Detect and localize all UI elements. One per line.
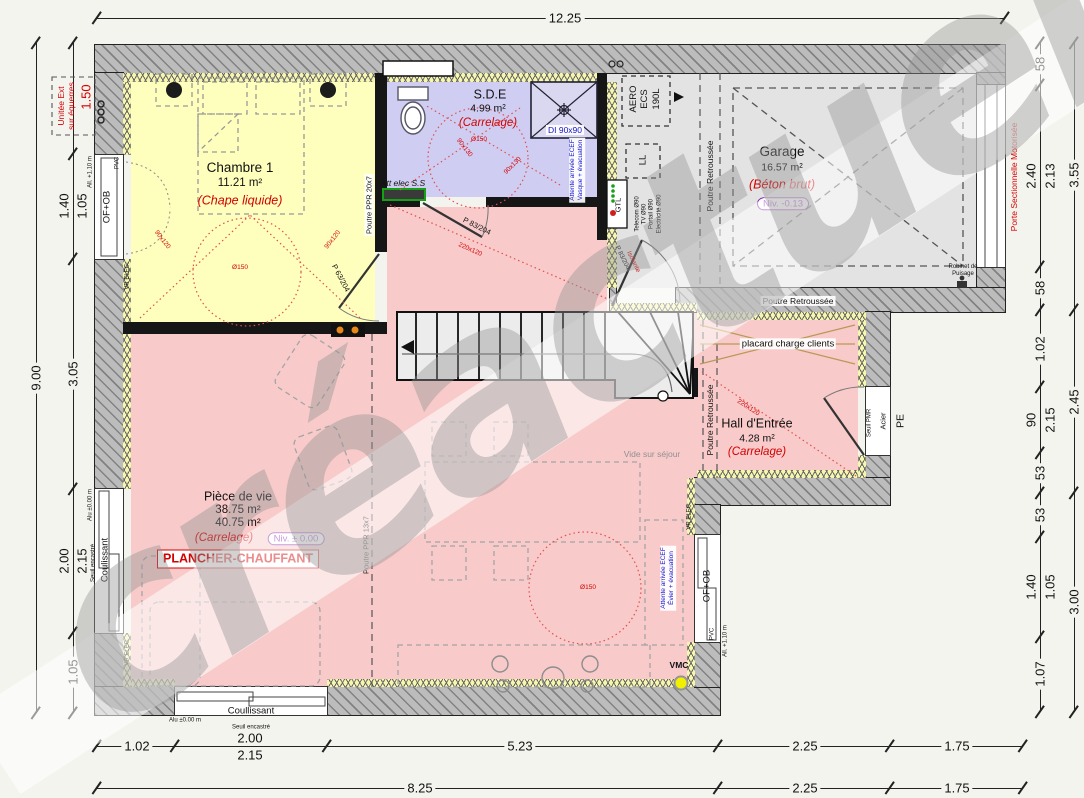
sill-height-label: All. +1.10 m: [87, 156, 94, 188]
dim-left: 2.00: [57, 545, 72, 576]
beam-label: Poutre Retroussée: [705, 141, 715, 212]
dim-bottom-total: 2.25: [789, 781, 820, 796]
window-label-pvc: PVC: [114, 157, 121, 169]
room-floor-sde: (Carrelage): [459, 117, 517, 131]
wall-hall-right: [866, 312, 890, 387]
insulation: [123, 82, 131, 155]
exterior-unit-label: Unitée Ext sur équerres: [56, 82, 76, 130]
insulation: [123, 73, 607, 82]
seuil-pmr-label: Seuil PMR: [866, 409, 873, 437]
window-label-pvc: PVC: [709, 628, 716, 640]
insulation: [697, 312, 866, 320]
circle-diameter-label: Ø150: [580, 584, 596, 592]
dim-left: 1.50: [79, 81, 94, 112]
insulation: [327, 679, 687, 687]
wall-garage-right: [977, 267, 1005, 288]
dim-left: 1.05: [75, 190, 90, 221]
room-floor-chambre: (Chape liquide): [198, 194, 283, 209]
wall-hall-right: [866, 455, 890, 478]
insulation: [131, 679, 175, 687]
level-badge-living: Niv. ± 0.00: [268, 532, 325, 545]
dim-right: 2.40: [1024, 160, 1039, 191]
entry-door-label: PE: [895, 414, 908, 428]
unite-line1: Unitée Ext: [56, 82, 66, 130]
insulation: [697, 470, 858, 478]
evier-line: Évier + évacuation: [668, 547, 676, 608]
seuil-encastre-label: Seuil encastré: [232, 724, 270, 731]
wall-bottom: [95, 687, 175, 715]
washer-label: LL: [637, 155, 648, 166]
dim-right: 2.13: [1043, 160, 1058, 191]
room-area-garage: 16.57 m²: [761, 162, 802, 175]
shower-size-label: DI 90x90: [546, 125, 584, 135]
telecom-line: Telecom Ø90: [635, 194, 642, 233]
dim-right: 58: [1033, 54, 1048, 74]
room-name-sde: S.D.E: [474, 88, 507, 103]
room-name-chambre: Chambre 1: [207, 160, 274, 176]
dim-right-outer: 3.00: [1067, 586, 1082, 617]
dim-right-outer: 3.55: [1067, 159, 1082, 190]
wall-left: [95, 259, 123, 489]
volume-line: 190L: [651, 86, 662, 113]
dim-left: 1.05: [66, 656, 81, 687]
room-floor-hall: (Carrelage): [728, 446, 786, 460]
beam-label: Poutre Retroussée: [705, 385, 715, 456]
window-label-ofob: OF+OB: [101, 191, 112, 223]
ecs-line: ECS: [639, 86, 650, 113]
room-area-living-1: 38.75 m²: [215, 504, 260, 518]
insulation: [858, 455, 866, 478]
dim-bottom-total: 1.75: [941, 781, 972, 796]
dim-right-outer: 2.45: [1067, 386, 1082, 417]
gtl-label: GTL: [614, 198, 623, 213]
wall-garage-bottom: [676, 288, 1005, 312]
floor-plan: Chambre 1 11.21 m² (Chape liquide) Ø150 …: [0, 0, 1084, 798]
aero-ecs-label: AERO ECS 190L: [628, 86, 662, 113]
wall-stair-stub: [688, 368, 698, 397]
room-area-chambre: 11.21 m²: [218, 177, 263, 191]
attente-vasque-label: Attente arrivée ECEF Vasque + évacuation: [569, 137, 585, 202]
room-living-floor: [387, 207, 607, 334]
beam-label: Poutre Retroussée: [761, 296, 836, 306]
wall-sde-bottom: [387, 197, 420, 207]
insulation: [123, 259, 131, 489]
dim-bottom: 2.25: [789, 739, 820, 754]
utility-feeds-label: Telecom Ø90 TV Ø90 Portail Ø90 Electrici…: [635, 194, 664, 233]
placard-label: placard charge clients: [740, 338, 836, 349]
room-area-sde: 4.99 m²: [470, 103, 506, 116]
circle-diameter-label: Ø150: [232, 264, 248, 272]
portail-line: Portail Ø90: [649, 194, 656, 233]
dim-right: 1.40: [1024, 571, 1039, 602]
dim-left: 3.05: [66, 358, 81, 389]
room-name-hall: Hall d'Entrée: [721, 417, 792, 432]
heating-label: PLANCHER-CHAUFFANT: [157, 550, 319, 569]
dim-left-total: 9.00: [29, 362, 44, 393]
electricite-line: Electricité Ø90: [656, 194, 663, 233]
insulation: [858, 320, 866, 387]
dim-bottom: 1.75: [941, 739, 972, 754]
room-living-floor: [607, 312, 697, 334]
room-area-hall: 4.28 m²: [739, 433, 775, 446]
tv-line: TV Ø90: [642, 194, 649, 233]
robinet-label: Robinet de Puisage: [948, 264, 977, 278]
sill-height-label: All. +1.10 m: [722, 625, 729, 657]
att-elec-label: Att elec S.S: [381, 178, 425, 188]
circle-diameter-label: Ø150: [471, 136, 487, 144]
attente-ecef-line: Attente arrivée ECEF: [569, 139, 577, 200]
dim-left: 2.15: [75, 545, 90, 576]
robinet-line1: Robinet de: [948, 264, 977, 271]
dim-right: 1.05: [1043, 571, 1058, 602]
dim-bottom: 2.15: [234, 748, 265, 763]
insulation: [607, 82, 617, 288]
wall-sde-bottom: [486, 197, 607, 207]
vasque-line: Vasque + évacuation: [577, 139, 585, 200]
dim-bottom: 2.00: [234, 731, 265, 746]
wall-top: [95, 45, 1005, 73]
vr-elec-label: VR ELEC.: [124, 638, 131, 665]
dim-bottom: 1.02: [121, 739, 152, 754]
dim-right: 53: [1033, 505, 1048, 525]
dim-right: 2.15: [1043, 404, 1058, 435]
seuil-encastre-label: Seuil encastré: [90, 544, 97, 582]
dim-right: 1.02: [1033, 333, 1048, 364]
alu-level-label: Alu ±0.00 m: [169, 717, 201, 724]
sectional-door-label: Porte Sectionnelle Motorisée: [1009, 123, 1019, 232]
aero-line: AERO: [628, 86, 639, 113]
wall-chambre-living: [123, 322, 387, 334]
vmc-label: VMC: [670, 660, 689, 670]
attente-evier-label: Attente arrivée ECEF Évier + évacuation: [660, 545, 676, 610]
room-name-living: Pièce de vie: [204, 490, 272, 505]
acier-label: Acier: [879, 412, 888, 429]
dim-bottom-total: 8.25: [404, 781, 435, 796]
dim-line-bottom-2: [97, 788, 1023, 789]
dim-right: 53: [1033, 463, 1048, 483]
dim-bottom: 5.23: [504, 739, 535, 754]
wall-bottom: [327, 687, 720, 715]
dim-top-total: 12.25: [546, 11, 585, 26]
level-badge-garage: Niv. -0.13: [757, 197, 809, 210]
room-name-garage: Garage: [759, 144, 804, 160]
alu-level-label: Alu ±0.00 m: [87, 489, 94, 521]
dim-right: 1.07: [1033, 658, 1048, 689]
beam-label-ppr20: Poutre PPR 20x7: [365, 174, 374, 236]
wall-hall-bottom: [695, 478, 890, 505]
attente-ecef-line: Attente arrivée ECEF: [660, 547, 668, 608]
dim-right: 90: [1024, 410, 1039, 430]
beam-label-ppr13: Poutre PPR 13x7: [362, 516, 371, 574]
room-floor-living: (Carrelage): [195, 532, 253, 546]
vr-elec-label: VR ELEC.: [686, 502, 693, 529]
garage-sectional-door: [977, 85, 1005, 267]
wall-living-right: [695, 505, 720, 535]
wall-left: [95, 73, 123, 155]
vide-sur-sejour-label: Vide sur séjour: [624, 449, 681, 459]
wall-chambre-sde: [375, 73, 387, 252]
robinet-line2: Puisage: [948, 271, 977, 278]
insulation: [610, 303, 697, 312]
vr-elec-label: VR ELEC.: [124, 262, 131, 289]
window-label-coullissant: Coullissant: [228, 705, 274, 716]
unite-line2: sur équerres: [66, 82, 76, 130]
wall-garage-right: [977, 73, 1005, 85]
window-label-coulissant: Coulissant: [99, 538, 110, 582]
dim-right: 58: [1033, 278, 1048, 298]
room-floor-garage: (Béton brut): [749, 178, 815, 193]
window-label-ofob: OF+OB: [701, 570, 712, 602]
dim-left: 1.40: [57, 190, 72, 221]
wall-living-right: [695, 642, 720, 687]
room-area-living-2: 40.75 m²: [215, 517, 260, 531]
wall-left: [95, 633, 123, 687]
dim-line-right-inner: [1040, 43, 1041, 712]
wall-sde-garage: [597, 73, 607, 240]
